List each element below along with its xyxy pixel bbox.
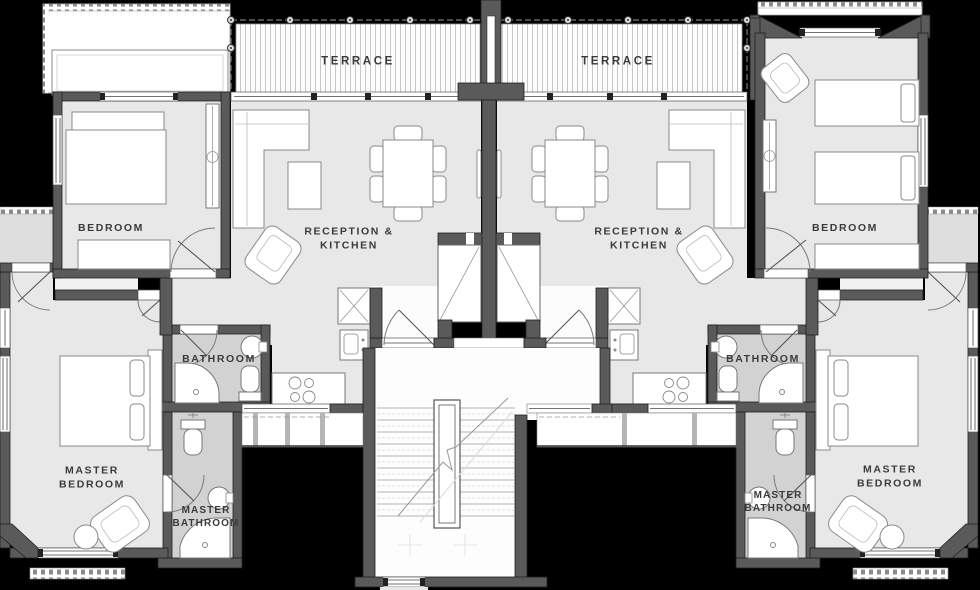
floor-plan: TERRACE TERRACE BEDROOM BEDROOM RECEPTIO… [0, 0, 980, 590]
stair-wall-left [363, 348, 375, 587]
room-label-bathroom-left: BATHROOM [182, 353, 256, 367]
room-label-bathroom-right: BATHROOM [726, 353, 800, 367]
stair-rail [434, 400, 460, 528]
room-label-terrace-right: TERRACE [581, 55, 655, 70]
bed [78, 240, 170, 269]
wardrobe [763, 120, 776, 192]
room-label-reception-left: RECEPTION & KITCHEN [304, 225, 393, 252]
room-label-reception-right: RECEPTION & KITCHEN [594, 225, 683, 252]
floor-plan-canvas [0, 0, 980, 590]
room-label-master-bathroom-right: MASTER BATHROOM [745, 489, 812, 515]
bed [66, 112, 166, 204]
roof-terrace-left [43, 4, 230, 95]
bay-window [800, 28, 880, 37]
room-label-terrace-left: TERRACE [321, 55, 395, 70]
bedroom-left [53, 92, 230, 278]
stair-wall-right [515, 415, 527, 587]
room-label-master-bedroom-right: MASTER BEDROOM [857, 463, 923, 490]
room-label-bedroom-left: BEDROOM [78, 222, 144, 236]
party-wall [482, 100, 496, 348]
room-label-bedroom-right: BEDROOM [812, 222, 878, 236]
bedroom-right [750, 2, 930, 278]
stair-entrance-door [380, 577, 428, 590]
pillow [901, 156, 915, 200]
wardrobe [206, 104, 219, 208]
room-label-master-bedroom-left: MASTER BEDROOM [59, 464, 125, 491]
room-label-master-bathroom-left: MASTER BATHROOM [173, 504, 240, 530]
pillow [901, 84, 915, 122]
walkway-left [242, 413, 363, 447]
